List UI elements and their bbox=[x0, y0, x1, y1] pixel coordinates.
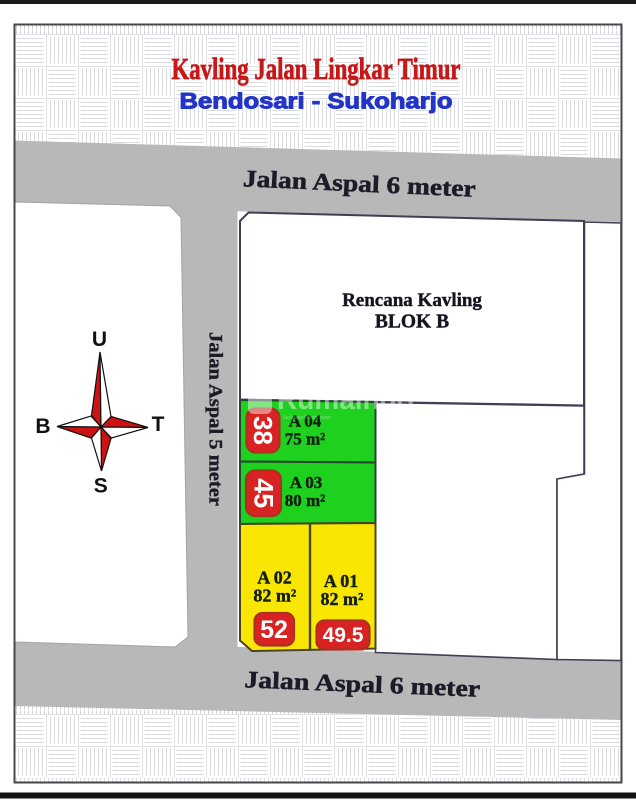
svg-text:Bendosari - Sukoharjo: Bendosari - Sukoharjo bbox=[180, 89, 453, 114]
svg-text:49.5: 49.5 bbox=[323, 624, 364, 647]
svg-text:T: T bbox=[152, 413, 165, 436]
svg-text:S: S bbox=[94, 475, 108, 498]
svg-text:45: 45 bbox=[249, 478, 279, 508]
svg-text:Kavling Jalan Lingkar Timur: Kavling Jalan Lingkar Timur bbox=[172, 51, 461, 86]
svg-text:Jalan Aspal 5 meter: Jalan Aspal 5 meter bbox=[205, 332, 226, 507]
svg-text:82 m²: 82 m² bbox=[321, 589, 364, 609]
svg-text:B: B bbox=[35, 415, 50, 438]
svg-text:Cari Apapun Properti Idaman: Cari Apapun Properti Idaman bbox=[283, 415, 331, 421]
svg-text:A 02: A 02 bbox=[257, 568, 292, 588]
svg-text:82 m²: 82 m² bbox=[253, 586, 296, 606]
svg-text:38: 38 bbox=[248, 416, 278, 445]
svg-text:U: U bbox=[92, 328, 107, 351]
svg-text:75 m²: 75 m² bbox=[285, 430, 326, 449]
svg-text:Rencana Kavling: Rencana Kavling bbox=[342, 290, 482, 311]
svg-text:A 01: A 01 bbox=[324, 571, 359, 591]
svg-text:A 03: A 03 bbox=[290, 473, 323, 492]
svg-text:Rumaindo: Rumaindo bbox=[277, 384, 414, 415]
svg-text:52: 52 bbox=[260, 616, 288, 644]
svg-text:80 m²: 80 m² bbox=[285, 491, 326, 510]
svg-text:BLOK B: BLOK B bbox=[375, 312, 449, 333]
